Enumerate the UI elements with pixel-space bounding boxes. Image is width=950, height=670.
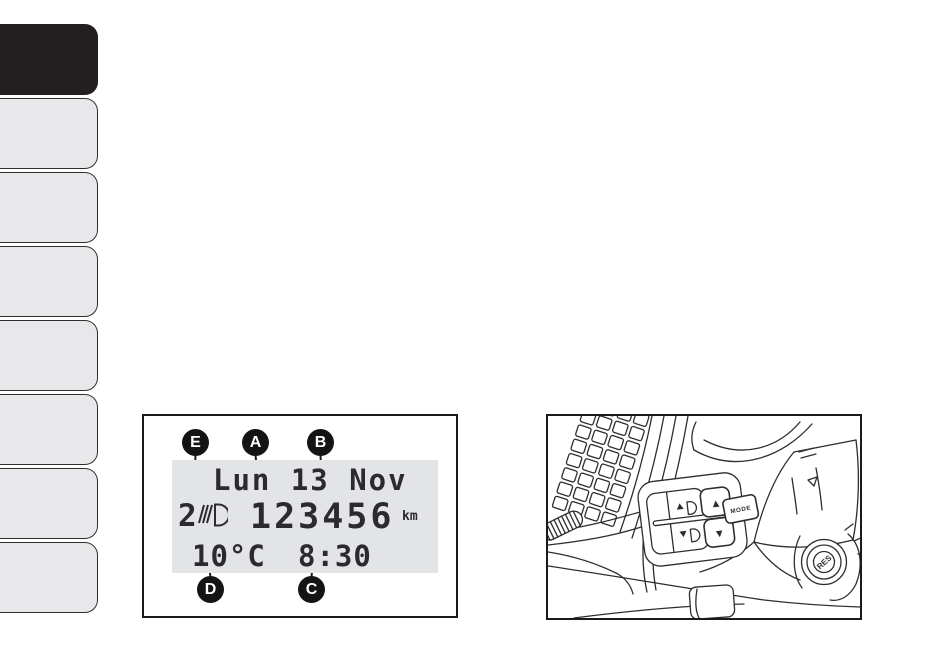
headlight-leveling-icon <box>196 502 228 529</box>
callout-c-label: C <box>306 581 318 599</box>
callout-a-label: A <box>250 434 262 452</box>
temperature-display: 10°C <box>192 542 266 571</box>
section-tab-8 <box>0 542 98 613</box>
section-tab-strip <box>0 24 98 616</box>
section-tab-7 <box>0 468 98 539</box>
callout-c: C <box>298 576 325 603</box>
figure-display-panel: E A B D C Lun 13 Nov 2 123456 km 10°C 8:… <box>142 414 458 618</box>
section-tab-5 <box>0 320 98 391</box>
res-knob: RES <box>794 524 860 600</box>
date-display: Lun 13 Nov <box>213 466 408 495</box>
section-tab-1 <box>0 24 98 95</box>
callout-d: D <box>197 576 224 603</box>
callout-d-label: D <box>205 581 217 599</box>
trip-display-screen: Lun 13 Nov 2 123456 km 10°C 8:30 <box>172 460 438 573</box>
steering-column-shroud <box>754 440 858 547</box>
callout-e-label: E <box>190 434 201 452</box>
odometer-value: 123456 <box>250 500 394 535</box>
headlight-level-value: 2 <box>178 501 197 532</box>
storage-pocket <box>689 585 735 618</box>
callout-b: B <box>307 429 334 456</box>
callout-a: A <box>242 429 269 456</box>
figure-dashboard-controls: RES ▲ ▼ MODE <box>546 414 862 620</box>
air-vent-grille <box>552 416 649 527</box>
odometer-unit: km <box>402 510 418 523</box>
manual-page: { "page": { "background": "#ffffff", "in… <box>0 0 950 670</box>
section-tab-3 <box>0 172 98 243</box>
section-tab-6 <box>0 394 98 465</box>
section-tab-2 <box>0 98 98 169</box>
clock-display: 8:30 <box>298 542 372 571</box>
dimmer-thumbwheel <box>548 508 585 543</box>
section-tab-4 <box>0 246 98 317</box>
mode-button: MODE <box>722 494 759 524</box>
steering-wheel-rim <box>692 422 812 461</box>
callout-e: E <box>182 429 209 456</box>
dashboard-illustration: RES ▲ ▼ MODE <box>548 416 860 618</box>
callout-b-label: B <box>315 434 327 452</box>
